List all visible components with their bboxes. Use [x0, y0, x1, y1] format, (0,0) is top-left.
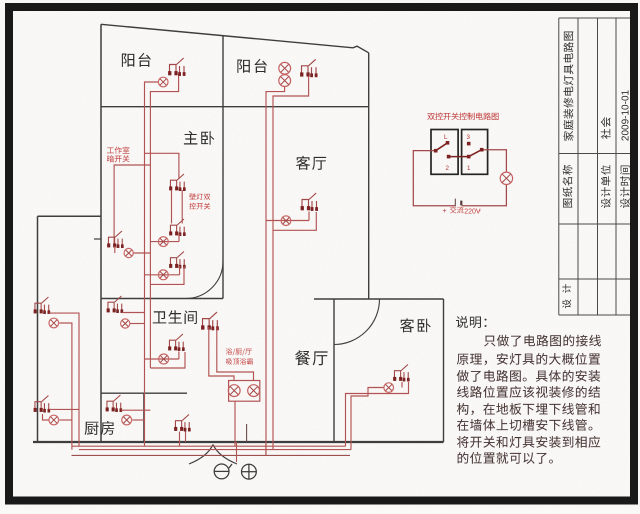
- svg-text:220V: 220V: [464, 208, 481, 215]
- svg-text:1: 1: [467, 165, 471, 172]
- svg-text:2009-10-01: 2009-10-01: [620, 89, 631, 141]
- svg-text:2: 2: [446, 165, 450, 172]
- svg-text:L: L: [444, 134, 448, 141]
- svg-text:3: 3: [467, 134, 471, 141]
- svg-text:+: +: [443, 208, 447, 215]
